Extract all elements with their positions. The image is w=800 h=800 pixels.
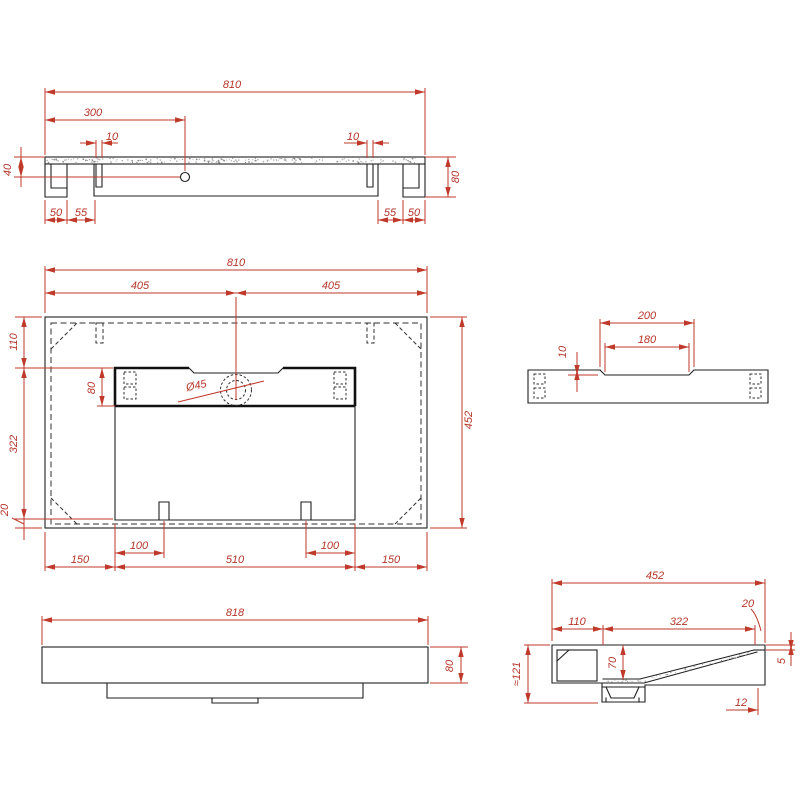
view-front-elevation-outline [42, 647, 428, 703]
dim-label-overall-width-810: 810 [223, 79, 242, 91]
dim-label-back-110: 110 [8, 332, 20, 350]
dim-label-margin-left-150: 150 [71, 554, 90, 566]
dim-label-rim-lip-5: 5 [776, 657, 788, 664]
dim-label-deck-80: 80 [86, 381, 98, 394]
view-bottom-edge-dimensions: 810 300 10 10 40 80 50 55 55 50 [2, 79, 462, 224]
dim-label-hole-offset-300: 300 [84, 107, 103, 119]
dim-label-section-depth-452: 452 [646, 570, 664, 582]
dim-label-rim-width-20: 20 [741, 598, 755, 610]
view-side-recess-dimensions: 200 180 10 [557, 310, 694, 392]
dim-label-bowl-length-322: 322 [8, 435, 20, 453]
dim-label-recess-outer-200: 200 [637, 310, 657, 322]
dim-label-front-width-818: 818 [226, 607, 245, 619]
dim-label-bowl-depth-70: 70 [607, 656, 619, 669]
dim-label-bowl-width-510: 510 [226, 554, 245, 566]
dim-label-gap-right-55: 55 [384, 207, 397, 219]
view-side-recess-outline [528, 370, 768, 403]
view-cross-section-dimensions: 452 110 322 20 70 5 12 ≈121 [511, 570, 795, 715]
dim-label-foot-right-50: 50 [408, 207, 421, 219]
dim-label-bowl-span-322: 322 [670, 616, 688, 628]
dim-label-back-width-110: 110 [568, 616, 586, 628]
dim-label-recess-depth-10: 10 [557, 345, 569, 358]
dim-label-drain-diameter: Ø45 [184, 378, 209, 394]
dim-label-clip-left-100: 100 [130, 540, 149, 552]
dim-label-depth-452: 452 [463, 411, 475, 429]
technical-drawing-canvas: 810 300 10 10 40 80 50 55 55 50 [0, 0, 800, 800]
dim-label-foot-left-50: 50 [50, 207, 63, 219]
view-cross-section-outline [552, 645, 765, 702]
dim-label-half-left-405: 405 [131, 280, 150, 292]
dim-label-height-80: 80 [450, 170, 462, 183]
view-front-elevation-dimensions: 818 80 [42, 607, 468, 683]
dim-label-bottom-12: 12 [735, 697, 747, 709]
dim-label-slot-right-10: 10 [347, 131, 360, 143]
dim-label-front-20: 20 [0, 503, 11, 517]
stone-texture-strip [47, 157, 416, 163]
dim-label-total-height-121: ≈121 [511, 662, 523, 686]
dim-label-gap-left-55: 55 [75, 207, 88, 219]
dim-label-recess-inner-180: 180 [638, 334, 657, 346]
dim-label-slot-left-10: 10 [106, 131, 119, 143]
dim-label-clip-right-100: 100 [321, 540, 340, 552]
dim-label-plan-width-810: 810 [227, 257, 246, 269]
dim-label-margin-right-150: 150 [382, 554, 401, 566]
dim-label-hole-height-40: 40 [2, 163, 14, 176]
dim-label-front-height-80: 80 [444, 659, 456, 672]
technical-drawing: 810 300 10 10 40 80 50 55 55 50 [0, 0, 800, 800]
dim-label-half-right-405: 405 [322, 280, 341, 292]
